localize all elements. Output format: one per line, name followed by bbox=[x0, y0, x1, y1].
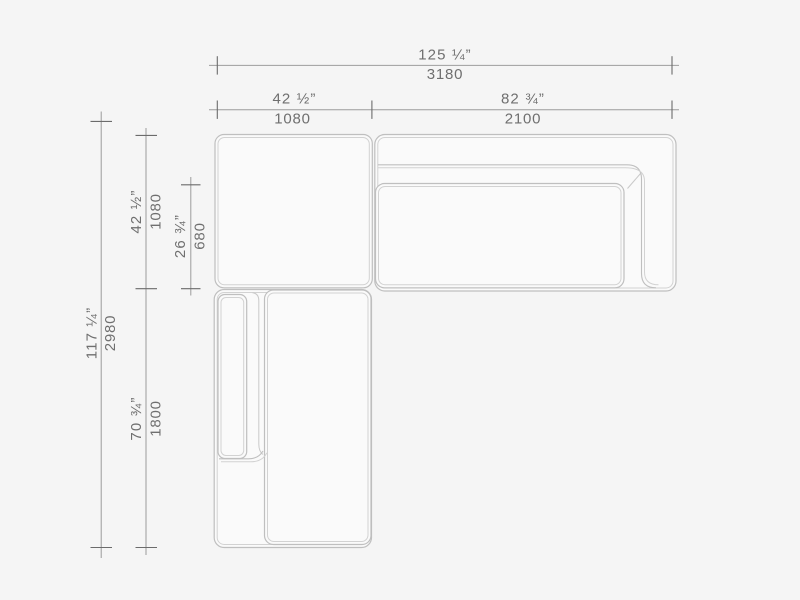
svg-text:70 ¾”: 70 ¾” bbox=[128, 396, 145, 440]
svg-text:1080: 1080 bbox=[274, 110, 311, 127]
svg-text:3180: 3180 bbox=[427, 66, 464, 83]
svg-text:42 ½”: 42 ½” bbox=[128, 189, 145, 233]
svg-text:1080: 1080 bbox=[148, 193, 165, 230]
svg-text:2980: 2980 bbox=[102, 315, 119, 352]
svg-text:117 ¼”: 117 ¼” bbox=[84, 307, 101, 360]
svg-text:125 ¼”: 125 ¼” bbox=[418, 47, 472, 64]
svg-text:42 ½”: 42 ½” bbox=[272, 91, 316, 108]
svg-text:2100: 2100 bbox=[505, 110, 542, 127]
svg-text:680: 680 bbox=[192, 222, 209, 249]
svg-text:1800: 1800 bbox=[148, 400, 165, 437]
svg-text:82 ¾”: 82 ¾” bbox=[501, 91, 545, 108]
svg-text:26 ¾”: 26 ¾” bbox=[172, 214, 189, 258]
